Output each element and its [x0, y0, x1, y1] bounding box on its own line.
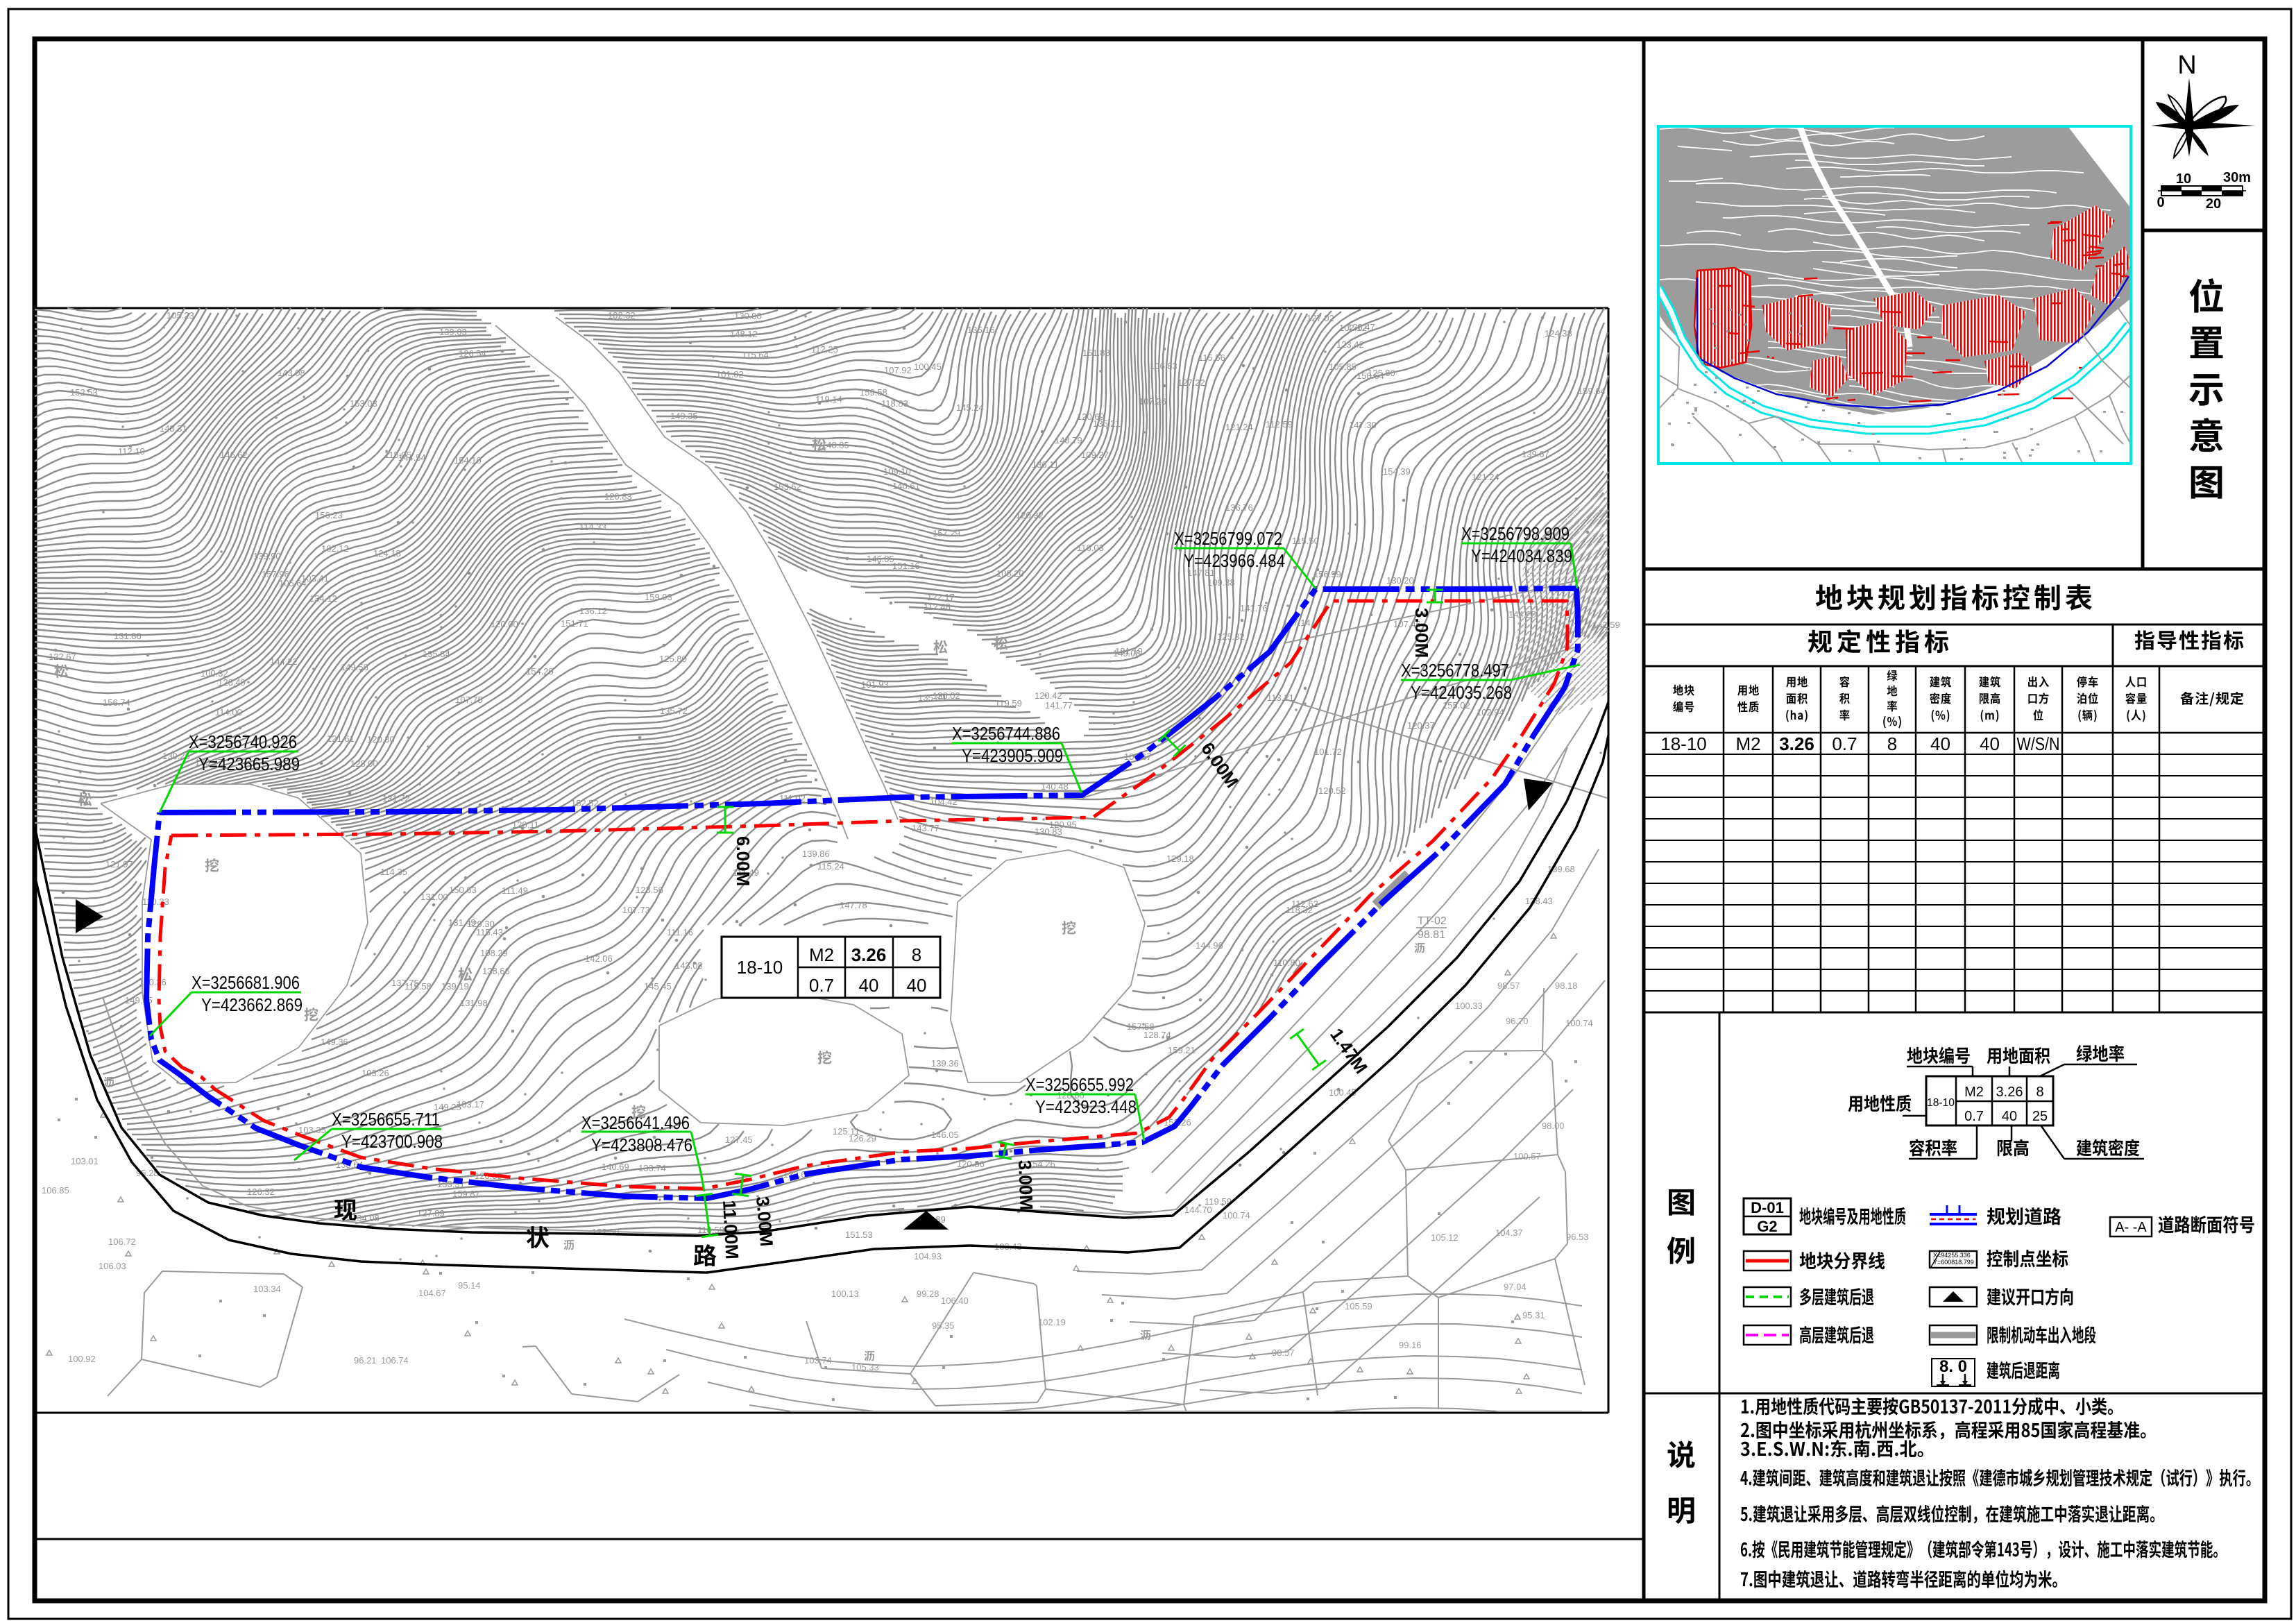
svg-text:156.23: 156.23 [315, 510, 343, 520]
svg-text:135.84: 135.84 [423, 649, 450, 659]
svg-text:115.24: 115.24 [817, 861, 844, 872]
svg-text:121.24: 121.24 [1225, 422, 1253, 432]
svg-text:143.08: 143.08 [675, 960, 703, 971]
svg-text:102.12: 102.12 [1339, 323, 1367, 333]
svg-text:A- -A: A- -A [2115, 1220, 2147, 1235]
svg-text:100.45: 100.45 [1329, 1087, 1357, 1098]
svg-text:128.00: 128.00 [350, 758, 378, 769]
svg-text:98.57: 98.57 [1497, 980, 1520, 991]
svg-text:18-10: 18-10 [1660, 733, 1707, 754]
svg-text:140.61: 140.61 [892, 481, 920, 491]
svg-text:40: 40 [859, 975, 879, 996]
svg-text:103.34: 103.34 [253, 1284, 281, 1294]
svg-text:106.74: 106.74 [381, 1355, 409, 1366]
svg-text:133.74: 133.74 [638, 1163, 666, 1173]
svg-text:G2: G2 [1757, 1218, 1777, 1235]
svg-text:X=3256655.992: X=3256655.992 [1026, 1074, 1134, 1095]
svg-text:120.95: 120.95 [1049, 819, 1077, 830]
svg-text:120.30: 120.30 [367, 734, 395, 745]
svg-text:Y=423662.869: Y=423662.869 [201, 994, 303, 1015]
svg-text:139.19: 139.19 [441, 981, 469, 992]
svg-text:140.85: 140.85 [822, 440, 849, 450]
svg-text:Y=424035.268: Y=424035.268 [1411, 682, 1512, 703]
svg-text:3.00M: 3.00M [1411, 608, 1432, 658]
svg-text:20: 20 [2206, 196, 2221, 212]
svg-text:97.04: 97.04 [1504, 1282, 1527, 1292]
svg-text:126.40: 126.40 [218, 677, 246, 688]
svg-text:105.59: 105.59 [1345, 1301, 1372, 1311]
svg-text:139.86: 139.86 [802, 849, 830, 859]
svg-text:140.69: 140.69 [602, 1162, 629, 1172]
svg-text:M2: M2 [1735, 733, 1760, 754]
svg-text:95.31: 95.31 [1522, 1310, 1545, 1320]
svg-text:11.00M: 11.00M [719, 1200, 742, 1260]
svg-text:122.67: 122.67 [49, 652, 76, 662]
svg-text:114.33: 114.33 [579, 522, 606, 532]
svg-text:121.61: 121.61 [327, 733, 355, 744]
svg-text:131.98: 131.98 [460, 998, 488, 1008]
svg-text:40: 40 [1930, 733, 1950, 754]
svg-text:40: 40 [2002, 1109, 2017, 1124]
svg-text:120.52: 120.52 [1318, 785, 1346, 796]
svg-text:159.87: 159.87 [452, 1189, 480, 1199]
svg-text:136.76: 136.76 [1225, 502, 1253, 513]
svg-text:138.43: 138.43 [1525, 896, 1553, 906]
svg-text:143.77: 143.77 [912, 823, 939, 833]
svg-text:101.93: 101.93 [861, 679, 889, 690]
svg-text:X=3256641.496: X=3256641.496 [581, 1112, 690, 1133]
svg-text:131.19: 131.19 [1115, 646, 1143, 656]
svg-text:120.86: 120.86 [957, 1159, 985, 1169]
svg-text:102.12: 102.12 [321, 543, 349, 554]
svg-text:107.73: 107.73 [622, 905, 650, 915]
svg-text:104.93: 104.93 [914, 1251, 942, 1261]
svg-text:125.11: 125.11 [833, 1126, 860, 1137]
svg-text:154.20: 154.20 [526, 666, 554, 677]
svg-text:120.69: 120.69 [1077, 411, 1105, 422]
svg-text:106.40: 106.40 [941, 1295, 969, 1306]
svg-text:154.39: 154.39 [1383, 466, 1411, 477]
svg-text:131.72: 131.72 [382, 793, 410, 804]
svg-text:X=3256655.711: X=3256655.711 [332, 1109, 440, 1130]
svg-text:120.00: 120.00 [491, 619, 518, 629]
svg-text:96.70: 96.70 [1506, 1016, 1529, 1026]
svg-text:100.45: 100.45 [914, 362, 942, 372]
svg-text:139.90: 139.90 [253, 551, 281, 561]
svg-text:139.36: 139.36 [931, 1058, 959, 1069]
svg-text:120.83: 120.83 [604, 491, 632, 502]
svg-text:98.18: 98.18 [1555, 980, 1578, 991]
svg-text:134.12: 134.12 [309, 593, 337, 604]
svg-text:120.42: 120.42 [1035, 690, 1062, 701]
svg-text:109.27: 109.27 [1081, 450, 1109, 460]
svg-text:159.93: 159.93 [645, 592, 672, 602]
svg-text:95.14: 95.14 [458, 1280, 481, 1291]
svg-text:139.67: 139.67 [1522, 449, 1549, 459]
svg-text:148.31: 148.31 [160, 423, 187, 434]
svg-text:103.35: 103.35 [298, 1125, 326, 1135]
svg-text:149.36: 149.36 [321, 1037, 348, 1047]
svg-text:Y=424034.839: Y=424034.839 [1471, 545, 1572, 566]
svg-text:10: 10 [2176, 171, 2191, 187]
svg-text:100.57: 100.57 [1513, 1151, 1541, 1162]
svg-text:112.25: 112.25 [811, 344, 838, 355]
svg-text:103.74: 103.74 [804, 1355, 832, 1366]
svg-text:8: 8 [1887, 733, 1897, 754]
svg-text:8: 8 [2036, 1085, 2043, 1100]
svg-text:99.28: 99.28 [917, 1289, 939, 1299]
svg-text:149.56: 149.56 [341, 662, 368, 672]
svg-text:40: 40 [907, 975, 927, 996]
svg-text:106.72: 106.72 [108, 1237, 136, 1247]
svg-text:144.22: 144.22 [270, 656, 298, 667]
svg-text:119.59: 119.59 [995, 698, 1022, 708]
svg-text:X=94255.336: X=94255.336 [1933, 1252, 1971, 1259]
svg-text:102.94: 102.94 [1477, 707, 1504, 717]
svg-text:140.48: 140.48 [1041, 781, 1069, 792]
svg-text:106.03: 106.03 [99, 1261, 126, 1271]
svg-text:40: 40 [1980, 733, 2000, 754]
svg-text:N: N [2177, 51, 2196, 80]
svg-text:148.79: 148.79 [1055, 435, 1082, 445]
svg-text:Y=423700.908: Y=423700.908 [341, 1131, 443, 1152]
svg-text:126.32: 126.32 [247, 1187, 275, 1197]
svg-text:W/S/N: W/S/N [2017, 733, 2060, 754]
svg-text:112.62: 112.62 [1291, 899, 1318, 909]
svg-text:147.30: 147.30 [1349, 420, 1377, 430]
svg-text:100.74: 100.74 [1223, 1210, 1250, 1221]
svg-text:M2: M2 [809, 944, 834, 965]
svg-text:127.22: 127.22 [1177, 377, 1205, 388]
svg-text:123.42: 123.42 [1336, 339, 1364, 350]
svg-text:100.32: 100.32 [201, 668, 228, 679]
svg-text:103.01: 103.01 [71, 1156, 99, 1166]
svg-text:101.02: 101.02 [716, 369, 744, 380]
svg-text:Y=423665.989: Y=423665.989 [198, 754, 300, 774]
svg-text:114.35: 114.35 [380, 867, 407, 877]
svg-text:115.50: 115.50 [1292, 536, 1319, 546]
svg-text:3.00M: 3.00M [752, 1196, 777, 1248]
svg-text:18-10: 18-10 [737, 957, 783, 978]
svg-text:154.10: 154.10 [454, 455, 482, 466]
svg-text:M2: M2 [1964, 1085, 1984, 1100]
svg-text:8: 8 [912, 944, 921, 965]
svg-text:0.7: 0.7 [809, 975, 834, 996]
svg-text:116.03: 116.03 [1077, 543, 1104, 553]
svg-text:112.48: 112.48 [924, 602, 951, 612]
svg-text:112.59: 112.59 [1266, 419, 1293, 430]
svg-text:145.24: 145.24 [956, 402, 984, 413]
svg-text:153.03: 153.03 [350, 398, 377, 409]
svg-text:X=3256740.926: X=3256740.926 [189, 731, 297, 752]
svg-text:141.77: 141.77 [1045, 700, 1073, 711]
svg-text:146.05: 146.05 [931, 1130, 959, 1140]
svg-text:157.58: 157.58 [1127, 1021, 1155, 1032]
svg-text:D-01: D-01 [1751, 1199, 1784, 1216]
svg-text:118.83: 118.83 [881, 398, 908, 409]
svg-text:121.97: 121.97 [105, 859, 133, 869]
svg-text:98.81: 98.81 [1418, 929, 1445, 941]
svg-text:105.64: 105.64 [279, 578, 307, 588]
svg-text:139.03: 139.03 [439, 327, 467, 337]
svg-text:126.54: 126.54 [459, 348, 486, 359]
svg-text:138.66: 138.66 [482, 966, 510, 976]
svg-text:X=3256799.072: X=3256799.072 [1174, 528, 1282, 549]
svg-text:129.18: 129.18 [1166, 853, 1194, 864]
svg-text:150.63: 150.63 [449, 885, 477, 895]
svg-text:105.23: 105.23 [167, 310, 194, 321]
svg-text:119.14: 119.14 [815, 394, 842, 405]
svg-text:130.00: 130.00 [734, 311, 762, 321]
svg-text:6.00M: 6.00M [733, 836, 754, 886]
svg-text:159.64: 159.64 [1578, 386, 1606, 396]
svg-text:96.21: 96.21 [354, 1355, 377, 1366]
svg-text:108.20: 108.20 [996, 568, 1024, 579]
svg-text:96.53: 96.53 [1566, 1232, 1589, 1242]
svg-text:120.32: 120.32 [1016, 510, 1044, 520]
svg-text:0: 0 [2157, 195, 2164, 210]
svg-text:106.85: 106.85 [42, 1185, 69, 1196]
svg-text:104.37: 104.37 [1495, 1227, 1523, 1238]
svg-text:146.05: 146.05 [867, 554, 894, 564]
svg-text:X=3256744.886: X=3256744.886 [952, 723, 1060, 744]
svg-text:142.06: 142.06 [585, 953, 613, 964]
svg-text:99.16: 99.16 [1399, 1340, 1422, 1350]
svg-text:125.80: 125.80 [659, 654, 687, 664]
svg-text:105.85: 105.85 [1329, 362, 1357, 372]
svg-text:141.76: 141.76 [1240, 603, 1268, 613]
svg-text:115.56: 115.56 [1198, 352, 1225, 363]
svg-text:124.38: 124.38 [1545, 328, 1572, 339]
svg-text:159.21: 159.21 [1168, 1045, 1196, 1055]
svg-text:107.92: 107.92 [884, 365, 912, 375]
svg-text:106.83: 106.83 [1150, 361, 1177, 371]
svg-text:Y=423923.448: Y=423923.448 [1035, 1096, 1137, 1117]
svg-text:98.00: 98.00 [1542, 1121, 1565, 1131]
svg-text:102.19: 102.19 [1038, 1317, 1066, 1327]
svg-text:110.23: 110.23 [142, 897, 169, 907]
svg-text:135.39: 135.39 [918, 692, 946, 703]
svg-text:146.62: 146.62 [220, 450, 248, 460]
svg-text:25: 25 [2032, 1109, 2048, 1124]
svg-text:115.05: 115.05 [384, 450, 411, 460]
svg-text:100.74: 100.74 [1565, 1018, 1593, 1028]
svg-text:3.26: 3.26 [851, 944, 887, 965]
svg-text:136.11: 136.11 [1032, 459, 1059, 470]
svg-text:159.58: 159.58 [860, 387, 887, 398]
svg-text:121.24: 121.24 [1472, 472, 1499, 482]
svg-text:18-10: 18-10 [1927, 1097, 1955, 1109]
svg-text:137.75: 137.75 [391, 978, 419, 988]
svg-text:125.32: 125.32 [1217, 631, 1245, 642]
svg-text:124.18: 124.18 [373, 548, 401, 559]
svg-text:152.53: 152.53 [70, 387, 98, 398]
svg-text:144.96: 144.96 [1196, 940, 1223, 951]
svg-text:100.92: 100.92 [68, 1354, 96, 1364]
svg-text:136.12: 136.12 [579, 606, 607, 616]
svg-text:135.72: 135.72 [660, 706, 688, 716]
svg-text:101.72: 101.72 [1314, 747, 1342, 757]
svg-text:127.89: 127.89 [417, 1208, 445, 1218]
svg-text:TT-02: TT-02 [1418, 915, 1447, 927]
svg-text:150.36: 150.36 [139, 977, 167, 987]
svg-text:149.35: 149.35 [670, 411, 698, 421]
svg-text:0.7: 0.7 [1964, 1109, 1984, 1124]
svg-text:153.62: 153.62 [774, 482, 801, 492]
svg-text:109.38: 109.38 [1207, 577, 1235, 588]
svg-text:104.67: 104.67 [418, 1288, 446, 1298]
svg-text:100.33: 100.33 [1455, 1001, 1483, 1011]
svg-text:Y=423905.909: Y=423905.909 [962, 745, 1063, 766]
svg-text:3.00M: 3.00M [1014, 1159, 1037, 1210]
svg-text:115.64: 115.64 [742, 350, 769, 360]
svg-text:Y=600818.799: Y=600818.799 [1933, 1259, 1974, 1266]
svg-text:151.88: 151.88 [1082, 348, 1110, 358]
svg-text:102.32: 102.32 [608, 310, 636, 321]
svg-text:114.00: 114.00 [215, 707, 242, 717]
svg-text:122.17: 122.17 [927, 592, 955, 602]
svg-text:120.37: 120.37 [1407, 720, 1435, 731]
svg-text:98.57: 98.57 [1272, 1348, 1295, 1358]
svg-text:151.53: 151.53 [845, 1230, 873, 1240]
svg-text:8. 0: 8. 0 [1939, 1357, 1967, 1376]
svg-text:Y=423966.484: Y=423966.484 [1184, 550, 1285, 571]
svg-text:131.86: 131.86 [114, 631, 142, 641]
svg-text:111.16: 111.16 [667, 927, 693, 937]
svg-text:151.16: 151.16 [892, 561, 920, 571]
svg-text:131.00: 131.00 [420, 892, 448, 902]
svg-text:109.10: 109.10 [883, 466, 911, 477]
svg-text:95.35: 95.35 [932, 1320, 955, 1331]
svg-text:X=3256778.497: X=3256778.497 [1401, 660, 1509, 681]
svg-text:3.26: 3.26 [1996, 1085, 2023, 1100]
svg-text:105.33: 105.33 [851, 1362, 879, 1373]
svg-text:107.75: 107.75 [455, 695, 483, 705]
svg-text:147.78: 147.78 [840, 900, 867, 910]
svg-text:145.45: 145.45 [644, 981, 672, 992]
svg-text:156.74: 156.74 [103, 697, 130, 708]
svg-text:111.49: 111.49 [502, 885, 528, 896]
svg-text:108.29: 108.29 [480, 948, 508, 958]
svg-text:127.02: 127.02 [1307, 313, 1334, 323]
svg-text:112.10: 112.10 [118, 446, 145, 457]
svg-text:120.11: 120.11 [512, 819, 539, 830]
svg-text:115.43: 115.43 [476, 927, 503, 937]
svg-text:150.64: 150.64 [1357, 371, 1384, 381]
svg-text:107.26: 107.26 [1139, 396, 1166, 407]
svg-text:3.26: 3.26 [1779, 733, 1814, 754]
svg-text:110.80: 110.80 [1273, 958, 1300, 968]
svg-text:Y=423808.476: Y=423808.476 [591, 1135, 692, 1155]
svg-text:130.20: 130.20 [1386, 575, 1414, 586]
svg-text:143.08: 143.08 [278, 368, 305, 378]
svg-text:30m: 30m [2223, 170, 2251, 185]
svg-text:103.26: 103.26 [362, 1068, 389, 1078]
svg-text:148.12: 148.12 [730, 329, 758, 339]
svg-text:151.71: 151.71 [561, 618, 588, 629]
svg-text:105.12: 105.12 [1431, 1232, 1459, 1243]
svg-text:123.56: 123.56 [636, 885, 663, 895]
svg-text:100.13: 100.13 [831, 1289, 859, 1299]
svg-text:135.16: 135.16 [967, 325, 995, 335]
svg-text:X=3256798.909: X=3256798.909 [1461, 523, 1570, 544]
svg-text:127.45: 127.45 [725, 1135, 753, 1145]
svg-text:157.29: 157.29 [933, 528, 960, 538]
svg-text:X=3256681.906: X=3256681.906 [192, 972, 300, 993]
svg-text:0.7: 0.7 [1832, 733, 1857, 754]
